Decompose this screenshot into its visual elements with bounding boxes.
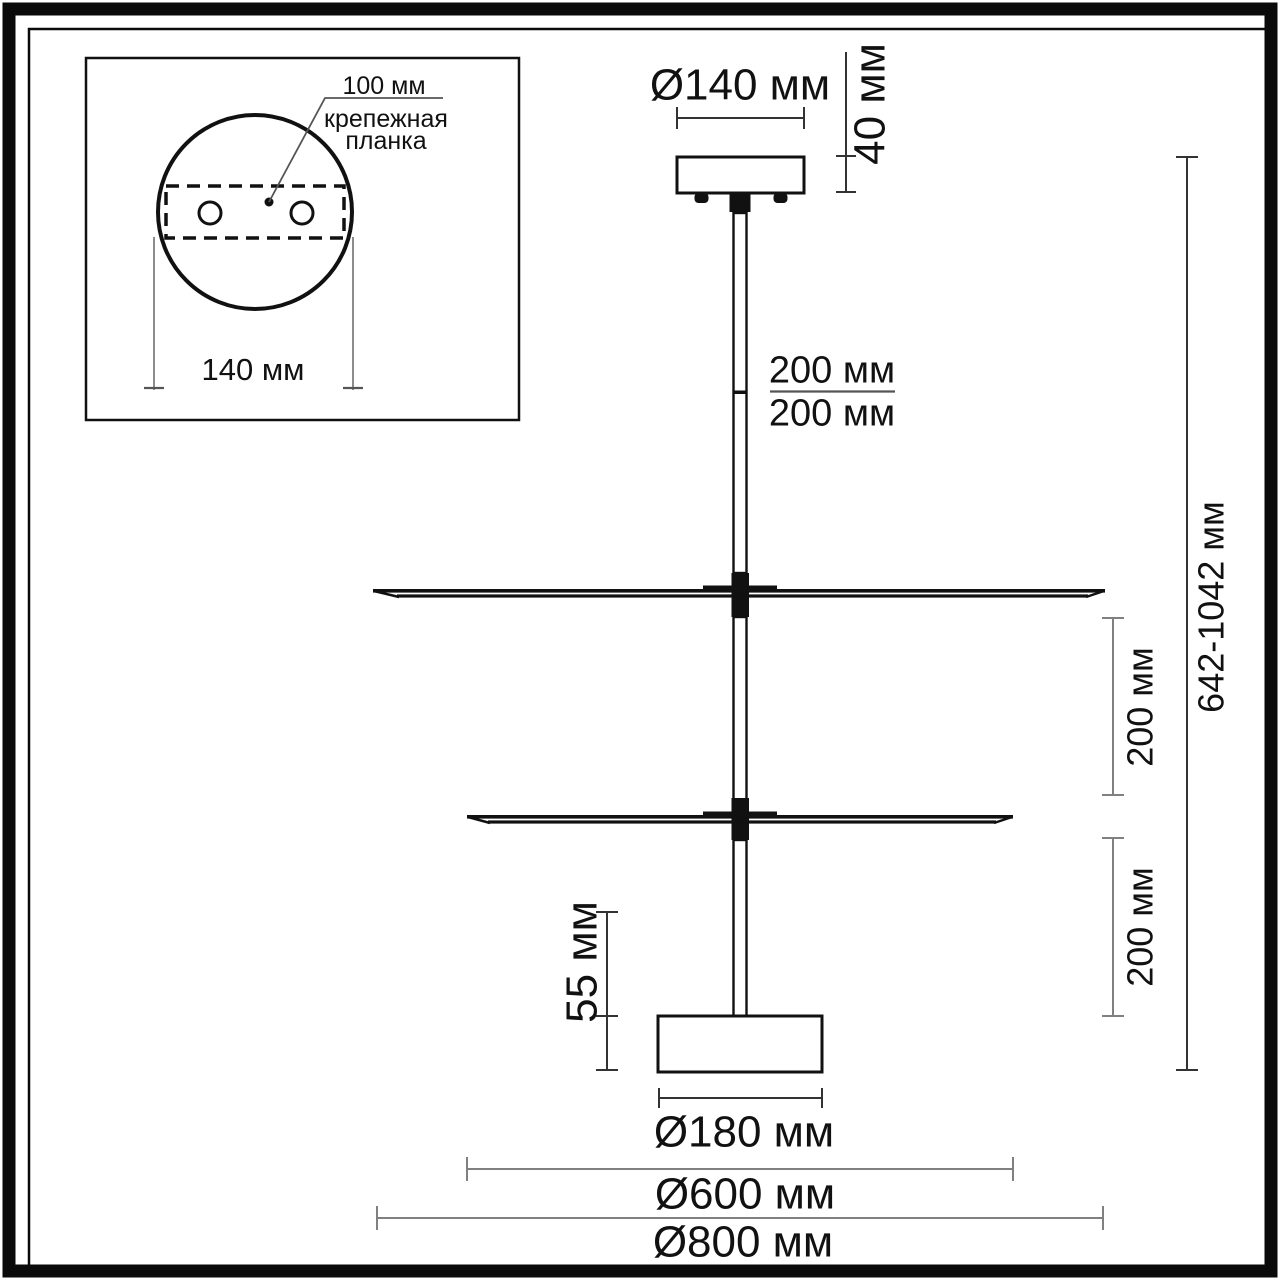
dimension-base-height: 55 мм xyxy=(557,901,618,1070)
pendant-lamp-dimension-diagram: 100 мм крепежная планка 140 мм xyxy=(0,0,1280,1280)
tier-gap-lower-label: 200 мм xyxy=(1120,867,1161,987)
tier-gap-upper-label: 200 мм xyxy=(1120,647,1161,767)
rod-segment-middle xyxy=(734,617,747,800)
base-cylinder xyxy=(658,1016,822,1072)
canopy-screw-left xyxy=(695,193,709,203)
overall-height-label: 642-1042 мм xyxy=(1191,501,1232,713)
mounting-detail-inset: 100 мм крепежная планка 140 мм xyxy=(86,58,519,420)
ceiling-canopy xyxy=(677,157,804,193)
rod-section-lower-label: 200 мм xyxy=(769,392,895,434)
technical-drawing-page: 100 мм крепежная планка 140 мм xyxy=(0,0,1280,1280)
disc-small-diameter-label: Ø600 мм xyxy=(655,1169,835,1218)
disc-large-bottom-edge xyxy=(397,594,1088,597)
base-diameter-dim-line xyxy=(659,1088,822,1108)
base-height-label: 55 мм xyxy=(557,901,606,1023)
inset-canopy-width-label: 140 мм xyxy=(202,352,305,387)
disc-large-top-edge xyxy=(373,589,1105,593)
rod-section-upper-label: 200 мм xyxy=(769,349,895,391)
disc-small-top-edge xyxy=(467,815,1013,819)
dimension-base-diameter: Ø180 мм xyxy=(654,1088,834,1156)
hole-spacing-label: 100 мм xyxy=(342,72,425,100)
dimension-canopy-diameter: Ø140 мм xyxy=(650,60,830,129)
rod-telescopic-joint xyxy=(733,391,748,395)
rod-segment-lower xyxy=(734,840,747,1016)
canopy-height-label: 40 мм xyxy=(845,43,894,165)
base-diameter-label: Ø180 мм xyxy=(654,1107,834,1156)
canopy-diameter-label: Ø140 мм xyxy=(650,60,830,109)
disc-small-hub xyxy=(732,798,750,840)
dimension-canopy-height: 40 мм xyxy=(836,43,894,192)
dimension-disc-small-diameter: Ø600 мм xyxy=(467,1157,1013,1218)
canopy-screw-right xyxy=(774,193,788,203)
dimension-rod-sections: 200 мм 200 мм xyxy=(769,349,895,434)
dimension-tier-gap-upper: 200 мм xyxy=(1102,618,1161,795)
dimension-overall-height: 642-1042 мм xyxy=(1176,157,1232,1070)
dimension-tier-gap-lower: 200 мм xyxy=(1102,838,1161,1016)
disc-large-diameter-label: Ø800 мм xyxy=(653,1217,833,1266)
canopy-diameter-dim-line xyxy=(677,107,804,129)
rod-top-connector xyxy=(730,193,751,212)
mount-plate-label-line2: планка xyxy=(345,127,426,155)
disc-small-bottom-edge xyxy=(488,820,996,823)
